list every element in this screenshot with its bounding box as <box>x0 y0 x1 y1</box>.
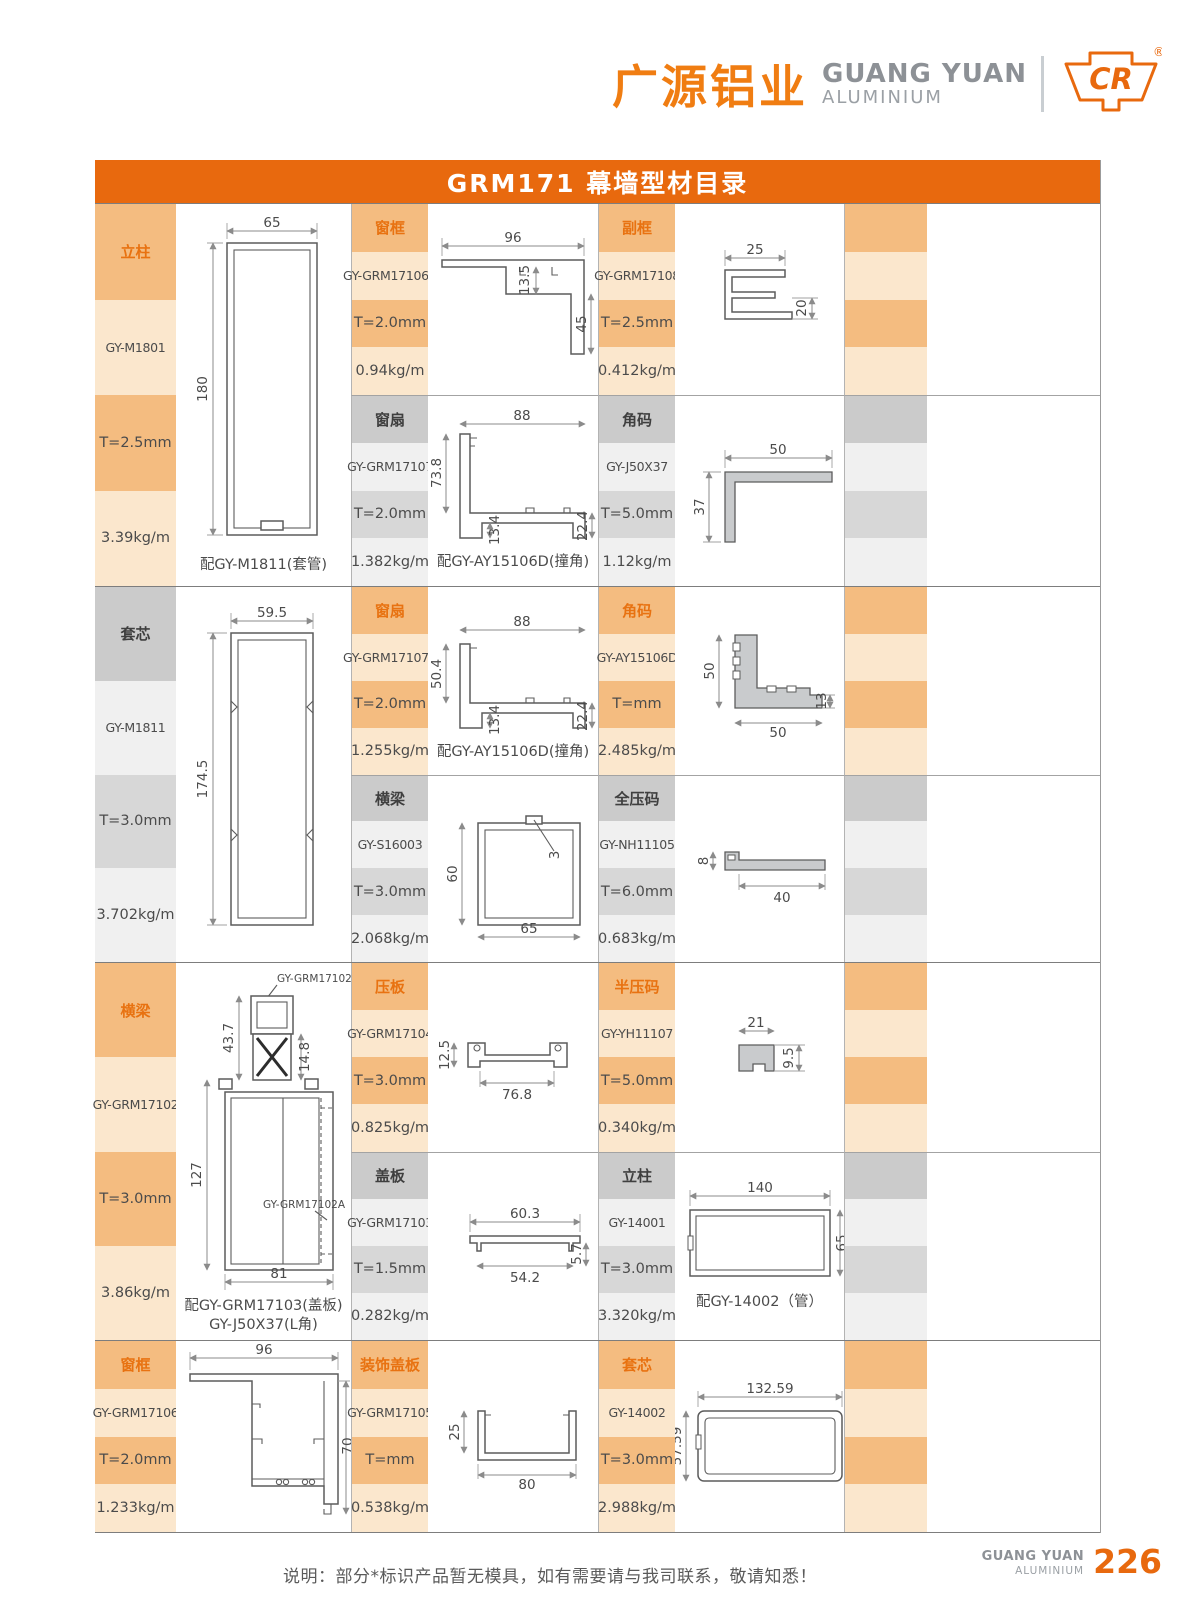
category-label: 横梁 <box>95 963 176 1057</box>
drawing-gy-grm17103: 60.3 54.2 5.7 <box>428 1152 598 1341</box>
weight: 0.825kg/m <box>351 1104 428 1151</box>
svg-text:127: 127 <box>189 1162 205 1188</box>
category-label: 装饰盖板 <box>351 1341 428 1389</box>
category-label: 全压码 <box>598 775 675 822</box>
svg-text:22.4: 22.4 <box>575 701 591 731</box>
drawing-gy-m1811: 59.5 174.5 <box>176 587 351 962</box>
svg-text:174.5: 174.5 <box>195 759 211 798</box>
svg-text:180: 180 <box>195 376 211 402</box>
svg-text:50: 50 <box>769 442 786 458</box>
stripe-band <box>844 587 927 634</box>
svg-text:70: 70 <box>340 1437 352 1454</box>
svg-text:5.7: 5.7 <box>569 1244 585 1265</box>
svg-text:13: 13 <box>814 692 830 709</box>
page-title: GRM171 幕墙型材目录 <box>95 160 1100 203</box>
svg-text:65: 65 <box>263 215 280 231</box>
stripe-band <box>844 1104 927 1151</box>
brand-name-cn: 广源铝业 <box>612 51 808 117</box>
thickness: T=3.0mm <box>95 1152 176 1246</box>
stripe-band <box>844 1389 927 1437</box>
weight: 3.39kg/m <box>95 491 176 587</box>
svg-text:60.3: 60.3 <box>510 1206 540 1222</box>
drawing-gy-m1801: 65 180 配GY-M1811(套管) <box>176 204 351 586</box>
svg-text:14.8: 14.8 <box>297 1042 313 1072</box>
stripe-band <box>844 443 927 491</box>
weight: 3.702kg/m <box>95 868 176 962</box>
stripe-band <box>844 821 927 868</box>
thickness: T=3.0mm <box>598 1437 675 1485</box>
svg-text:132.59: 132.59 <box>746 1383 793 1397</box>
weight: 0.538kg/m <box>351 1484 428 1532</box>
svg-text:65: 65 <box>834 1235 845 1252</box>
model-code: GY-GRM17106A <box>351 252 428 300</box>
model-code: GY-GRM17105 <box>351 1389 428 1437</box>
svg-text:13.5: 13.5 <box>517 264 533 294</box>
thickness: T=6.0mm <box>598 868 675 915</box>
weight: 3.86kg/m <box>95 1246 176 1340</box>
profile-group-4: 窗框 GY-GRM17106 T=2.0mm 1.233kg/m 96 70 <box>95 1340 1100 1533</box>
thickness: T=5.0mm <box>598 491 675 539</box>
thickness: T=mm <box>351 1437 428 1485</box>
model-code: GY-M1811 <box>95 681 176 775</box>
footer-brand: GUANG YUAN ALUMINIUM <box>982 1550 1084 1577</box>
drawing-gy-grm17107: 88 73.8 13.4 22.4 配GY-AY15106D(撞角) <box>428 395 598 586</box>
catalog-table: GRM171 幕墙型材目录 立柱 GY-M1801 T=2.5mm 3.39kg… <box>95 160 1101 1533</box>
thickness: T=2.0mm <box>351 491 428 539</box>
catalog-page: 广源铝业 GUANG YUAN ALUMINIUM CR ® GRM171 幕墙… <box>0 0 1200 1617</box>
stripe-band <box>844 347 927 395</box>
profile-group-3: 横梁 GY-GRM17102 T=3.0mm 3.86kg/m GY-GRM17… <box>95 962 1100 1340</box>
stripe-band <box>844 1437 927 1485</box>
drawing-gy-grm17106a: 96 13.5 45 <box>428 204 598 395</box>
svg-text:22.4: 22.4 <box>575 511 591 541</box>
weight: 0.412kg/m <box>598 347 675 395</box>
svg-text:45: 45 <box>574 315 590 332</box>
weight: 0.94kg/m <box>351 347 428 395</box>
thickness: T=3.0mm <box>351 868 428 915</box>
svg-text:96: 96 <box>255 1344 272 1358</box>
weight: 0.282kg/m <box>351 1293 428 1340</box>
empty-cell <box>927 1341 1100 1532</box>
svg-text:73.8: 73.8 <box>430 458 445 488</box>
svg-text:20: 20 <box>794 299 810 316</box>
stripe-band <box>844 395 927 443</box>
svg-text:80: 80 <box>518 1477 535 1491</box>
category-label: 窗扇 <box>351 395 428 443</box>
svg-text:CR: CR <box>1089 62 1133 96</box>
empty-cell <box>927 204 1100 395</box>
drawing-caption: 配GY-M1811(套管) <box>200 556 327 575</box>
model-code: GY-AY15106D <box>598 634 675 681</box>
model-code: GY-14002 <box>598 1389 675 1437</box>
model-code: GY-M1801 <box>95 300 176 396</box>
svg-text:9.5: 9.5 <box>781 1048 797 1069</box>
thickness: T=3.0mm <box>351 1057 428 1104</box>
drawing-caption: 配GY-GRM17103(盖板) GY-J50X37(L角) <box>184 1297 342 1335</box>
stripe-band <box>844 491 927 539</box>
stripe-band <box>844 1246 927 1293</box>
drawing-gy-14002: 132.59 57.59 <box>675 1341 844 1532</box>
thickness: T=5.0mm <box>598 1057 675 1104</box>
stripe-band <box>844 1057 927 1104</box>
stripe-band <box>844 204 927 252</box>
category-label: 窗框 <box>95 1341 176 1389</box>
footer-note: 说明：部分*标识产品暂无模具，如有需要请与我司联系，敬请知悉！ <box>0 1562 1100 1587</box>
svg-text:76.8: 76.8 <box>502 1087 532 1103</box>
weight: 3.320kg/m <box>598 1293 675 1340</box>
stripe-band <box>844 634 927 681</box>
svg-text:12.5: 12.5 <box>437 1040 453 1070</box>
model-code: GY-GRM17108 <box>598 252 675 300</box>
svg-text:81: 81 <box>270 1266 287 1282</box>
category-label: 角码 <box>598 587 675 634</box>
svg-text:54.2: 54.2 <box>510 1270 540 1286</box>
stripe-band <box>844 775 927 822</box>
category-label: 横梁 <box>351 775 428 822</box>
svg-text:96: 96 <box>504 230 521 246</box>
drawing-gy-grm17107a: 88 50.4 13.4 22.4 配GY-AY15106D(撞角) <box>428 587 598 775</box>
svg-text:88: 88 <box>513 410 530 424</box>
category-label: 盖板 <box>351 1152 428 1199</box>
stripe-band <box>844 1010 927 1057</box>
category-label: 立柱 <box>598 1152 675 1199</box>
category-label: 套芯 <box>598 1341 675 1389</box>
profile-group-2: 套芯 GY-M1811 T=3.0mm 3.702kg/m 59.5 174.5… <box>95 586 1100 962</box>
thickness: T=1.5mm <box>351 1246 428 1293</box>
company-logo-icon: CR ® <box>1058 44 1162 124</box>
empty-cell <box>927 1152 1100 1341</box>
drawing-caption: 配GY-14002（管） <box>696 1293 823 1312</box>
footer-page-block: GUANG YUAN ALUMINIUM 226 <box>982 1545 1162 1578</box>
svg-text:43.7: 43.7 <box>221 1023 237 1053</box>
category-label: 压板 <box>351 963 428 1010</box>
model-code: GY-14001 <box>598 1199 675 1246</box>
stripe-band <box>844 963 927 1010</box>
weight: 0.683kg/m <box>598 915 675 962</box>
thickness: T=mm <box>598 681 675 728</box>
stripe-band <box>844 681 927 728</box>
thickness: T=2.0mm <box>351 300 428 348</box>
category-label: 立柱 <box>95 204 176 300</box>
empty-cell <box>927 395 1100 586</box>
svg-text:59.5: 59.5 <box>256 605 286 621</box>
stripe-band <box>844 1484 927 1532</box>
svg-text:60: 60 <box>445 866 461 883</box>
stripe-band <box>844 1293 927 1340</box>
thickness: T=2.5mm <box>598 300 675 348</box>
svg-text:40: 40 <box>773 890 790 906</box>
svg-text:65: 65 <box>520 921 537 937</box>
model-code: GY-GRM17107 <box>351 443 428 491</box>
drawing-gy-j50x37: 50 37 <box>675 395 844 586</box>
stripe-band <box>844 1341 927 1389</box>
drawing-gy-yh11107: 21 9.5 <box>675 963 844 1152</box>
weight: 1.255kg/m <box>351 728 428 775</box>
stripe-band <box>844 915 927 962</box>
svg-text:3: 3 <box>547 851 563 860</box>
svg-text:13.4: 13.4 <box>487 515 503 545</box>
model-code: GY-GRM17102 <box>95 1057 176 1151</box>
brand-name-en: GUANG YUAN ALUMINIUM <box>822 60 1027 108</box>
empty-cell <box>927 587 1100 775</box>
drawing-gy-s16003: 3 60 65 <box>428 775 598 963</box>
stripe-band <box>844 252 927 300</box>
category-label: 角码 <box>598 395 675 443</box>
svg-text:50: 50 <box>769 725 786 741</box>
model-code: GY-GRM17107A <box>351 634 428 681</box>
model-code: GY-GRM17104 <box>351 1010 428 1057</box>
thickness: T=3.0mm <box>598 1246 675 1293</box>
svg-text:37: 37 <box>692 498 708 515</box>
weight: 0.340kg/m <box>598 1104 675 1151</box>
drawing-gy-ay15106d: 50 50 13 <box>675 587 844 775</box>
drawing-gy-nh11105: 8 40 <box>675 775 844 963</box>
profile-group-1: 立柱 GY-M1801 T=2.5mm 3.39kg/m 65 180 配GY-… <box>95 203 1100 586</box>
model-code: GY-GRM17103 <box>351 1199 428 1246</box>
drawing-gy-14001: 140 65 配GY-14002（管） <box>675 1152 844 1341</box>
svg-text:8: 8 <box>696 856 712 865</box>
weight: 1.233kg/m <box>95 1484 176 1532</box>
weight: 2.485kg/m <box>598 728 675 775</box>
brand-header: 广源铝业 GUANG YUAN ALUMINIUM CR ® <box>612 44 1162 124</box>
category-label: 套芯 <box>95 587 176 681</box>
model-code: GY-YH11107 <box>598 1010 675 1057</box>
svg-text:13.4: 13.4 <box>487 705 503 735</box>
drawing-gy-grm17108: 25 20 <box>675 204 844 395</box>
svg-text:GY-GRM17102B: GY-GRM17102B <box>277 973 351 985</box>
thickness: T=2.0mm <box>351 681 428 728</box>
stripe-band <box>844 868 927 915</box>
thickness: T=3.0mm <box>95 775 176 869</box>
thickness: T=2.5mm <box>95 395 176 491</box>
category-label: 半压码 <box>598 963 675 1010</box>
svg-text:57.59: 57.59 <box>675 1426 685 1465</box>
model-code: GY-J50X37 <box>598 443 675 491</box>
brand-divider <box>1041 56 1044 112</box>
svg-text:25: 25 <box>746 244 763 258</box>
model-code: GY-S16003 <box>351 821 428 868</box>
category-label: 窗框 <box>351 204 428 252</box>
drawing-gy-grm17106: 96 70 <box>176 1341 351 1532</box>
category-label: 窗扇 <box>351 587 428 634</box>
drawing-caption: 配GY-AY15106D(撞角) <box>437 743 589 762</box>
model-code: GY-GRM17106 <box>95 1389 176 1437</box>
svg-text:50: 50 <box>702 662 718 679</box>
svg-text:21: 21 <box>747 1015 764 1031</box>
svg-text:GY-GRM17102A: GY-GRM17102A <box>263 1199 346 1211</box>
svg-text:25: 25 <box>447 1423 463 1440</box>
weight: 2.068kg/m <box>351 915 428 962</box>
stripe-band <box>844 538 927 586</box>
drawing-gy-grm17105: 25 80 <box>428 1341 598 1532</box>
stripe-band <box>844 300 927 348</box>
drawing-gy-grm17104: 12.5 76.8 <box>428 963 598 1152</box>
stripe-band <box>844 728 927 775</box>
svg-text:®: ® <box>1153 45 1162 59</box>
svg-text:88: 88 <box>513 614 530 630</box>
thickness: T=2.0mm <box>95 1437 176 1485</box>
empty-cell <box>927 775 1100 963</box>
empty-cell <box>927 963 1100 1152</box>
stripe-band <box>844 1199 927 1246</box>
weight: 1.12kg/m <box>598 538 675 586</box>
weight: 1.382kg/m <box>351 538 428 586</box>
svg-text:140: 140 <box>747 1180 773 1196</box>
svg-text:50.4: 50.4 <box>430 659 445 689</box>
model-code: GY-NH11105 <box>598 821 675 868</box>
category-label: 副框 <box>598 204 675 252</box>
drawing-caption: 配GY-AY15106D(撞角) <box>437 553 589 572</box>
weight: 2.988kg/m <box>598 1484 675 1532</box>
drawing-gy-grm17102: GY-GRM17102B GY-GRM17102A 43.7 <box>176 963 351 1340</box>
stripe-band <box>844 1152 927 1199</box>
page-number: 226 <box>1093 1545 1162 1578</box>
